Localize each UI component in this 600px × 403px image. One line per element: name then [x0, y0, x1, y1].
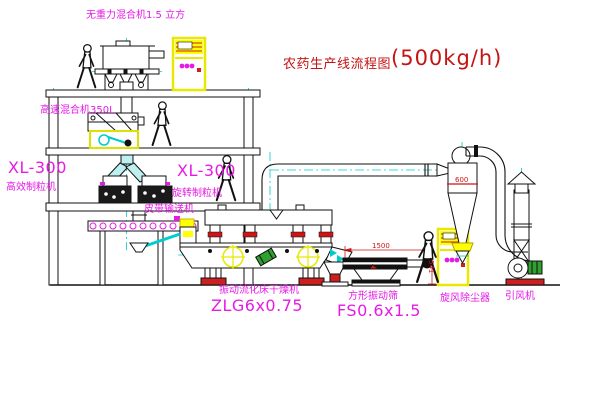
label-granulator-left-name: 高效制粒机	[6, 183, 56, 194]
label-cyclone: 旋风除尘器	[440, 294, 490, 305]
title-text: 农药生产线流程图	[283, 46, 391, 72]
dimension-sieve-height: 541	[427, 260, 435, 273]
person-figure-second-floor	[153, 102, 171, 145]
person-figure-top-floor	[78, 45, 96, 88]
control-cabinet-top	[173, 38, 205, 90]
label-gravity-mixer: 无重力混合机1.5 立方	[86, 11, 185, 22]
pesticide-production-line-drawing: 农药生产线流程图 (500kg/h) 无重力混合机1.5 立方 高速混合机350…	[0, 0, 600, 403]
floor-slab-middle	[46, 148, 260, 155]
fan-base	[506, 279, 544, 285]
dimension-sieve-width: 1500	[372, 242, 390, 250]
label-dryer-model: ZLG6x0.75	[211, 296, 303, 315]
high-speed-mixer	[88, 113, 144, 148]
label-sieve-model: FS0.6x1.5	[337, 301, 421, 320]
label-belt-conveyor: 皮带输送机	[144, 205, 194, 216]
label-dryer-name: 振动流化床干燥机	[219, 286, 299, 297]
granulator-left-unit	[99, 176, 131, 203]
gravity-free-mixer	[95, 41, 164, 113]
drawing-title: 农药生产线流程图 (500kg/h)	[283, 46, 502, 72]
label-granulator-left-model: XL-300	[8, 158, 67, 177]
label-high-speed-mixer: 高速混合机350L	[40, 106, 115, 117]
dimension-cyclone-diameter: 600	[455, 176, 468, 184]
dryer-nozzles	[208, 225, 333, 243]
exhaust-stack	[508, 172, 535, 262]
title-capacity: (500kg/h)	[391, 46, 502, 70]
fluid-bed-dryer	[180, 205, 352, 286]
label-fan: 引风机	[505, 292, 535, 303]
label-granulator-mid-name: 旋转制粒机	[172, 189, 222, 200]
dryer-exhaust-duct	[258, 164, 437, 210]
fan-motor	[528, 261, 542, 274]
floor-slab-top	[46, 90, 260, 97]
induced-draft-fan	[506, 258, 544, 285]
label-granulator-mid-model: XL-300	[177, 161, 236, 180]
person-figure-ground	[417, 232, 438, 282]
granulator-right-unit	[138, 176, 172, 203]
